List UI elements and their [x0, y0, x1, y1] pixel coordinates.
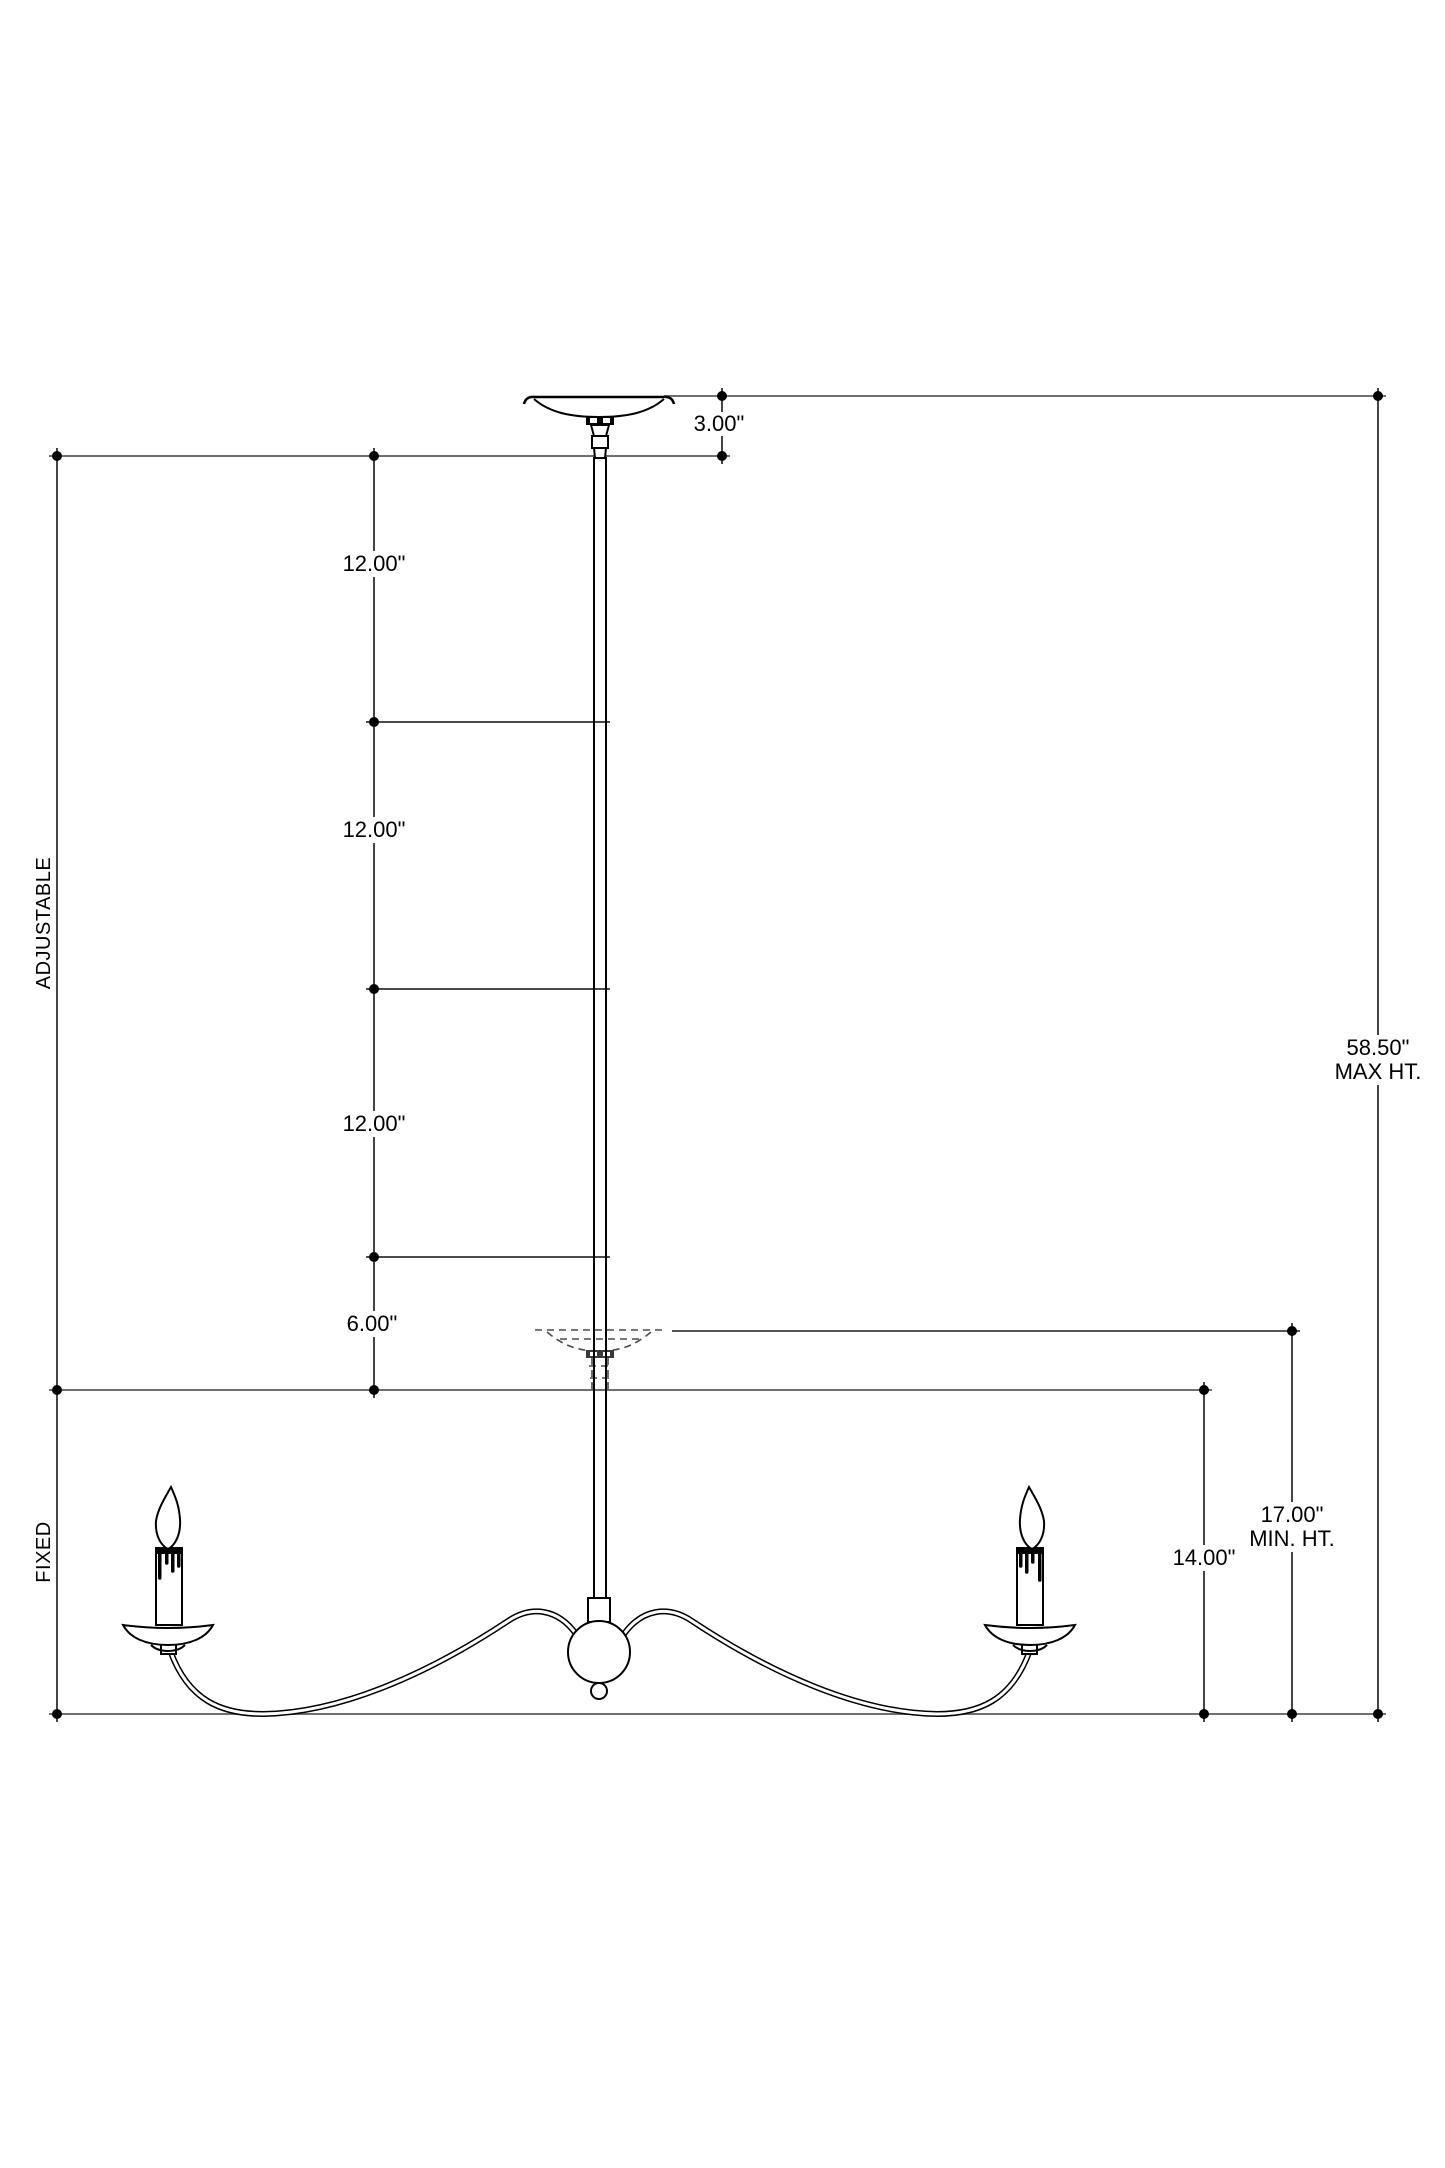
dim-label-max-height-unit: MAX HT.	[1335, 1060, 1422, 1084]
dot	[52, 451, 62, 461]
right-arm-inner	[624, 1611, 1030, 1714]
right-flame	[1020, 1487, 1044, 1549]
dim-label-fixed-height: 14.00"	[1168, 1545, 1241, 1571]
dot	[369, 1252, 379, 1262]
dimension-lines	[57, 388, 1378, 1722]
center-finial-ball	[591, 1683, 607, 1699]
dot	[1287, 1709, 1297, 1719]
canopy-coupler	[592, 436, 608, 448]
dot	[717, 451, 727, 461]
left-bobeche	[123, 1625, 213, 1645]
left-candle-assembly	[123, 1487, 213, 1654]
dimension-dots	[52, 391, 1383, 1719]
dot	[52, 1709, 62, 1719]
dot	[717, 391, 727, 401]
dim-label-rod-segment-2: 12.00"	[338, 817, 411, 843]
canopy-collar-slot-left	[590, 418, 597, 423]
dim-label-min-height: 17.00" MIN. HT.	[1244, 1502, 1340, 1552]
ceiling-canopy	[524, 397, 674, 458]
dot	[1287, 1326, 1297, 1336]
center-ball	[568, 1621, 630, 1683]
dim-label-max-height: 58.50" MAX HT.	[1330, 1035, 1427, 1085]
dim-label-canopy-drop: 3.00"	[691, 412, 748, 436]
reference-lines	[49, 396, 1386, 1714]
phantom-canopy	[535, 1330, 663, 1390]
section-label-adjustable: ADJUSTABLE	[32, 857, 56, 989]
dim-label-min-height-value: 17.00"	[1249, 1503, 1335, 1527]
dot	[369, 984, 379, 994]
dot	[1199, 1709, 1209, 1719]
center-collar-square	[588, 1598, 610, 1622]
canopy-neck	[591, 425, 609, 436]
canopy-coupler-lower	[594, 448, 606, 458]
dot	[369, 451, 379, 461]
dot	[1373, 391, 1383, 401]
dim-label-rod-segment-4: 6.00"	[342, 1311, 403, 1337]
right-bobeche	[985, 1625, 1075, 1645]
canopy-bowl	[534, 399, 664, 417]
dot	[1199, 1385, 1209, 1395]
dim-label-max-height-value: 58.50"	[1335, 1036, 1422, 1060]
hanging-rod	[594, 457, 606, 1600]
dim-label-min-height-unit: MIN. HT.	[1249, 1527, 1335, 1551]
canopy-collar-slot-right	[603, 418, 610, 423]
dot	[52, 1385, 62, 1395]
technical-drawing-canvas: 3.00" 12.00" 12.00" 12.00" 6.00" 58.50" …	[0, 0, 1445, 2168]
dot	[369, 1385, 379, 1395]
chandelier-dimension-drawing	[0, 0, 1445, 2168]
left-arm-inner	[170, 1611, 576, 1714]
left-arm-outline	[170, 1611, 576, 1714]
section-label-fixed: FIXED	[32, 1521, 56, 1582]
right-arm-outline	[624, 1611, 1030, 1714]
dot	[369, 717, 379, 727]
right-candle-assembly	[985, 1487, 1075, 1654]
phantom-canopy-bowl-left	[547, 1332, 599, 1351]
left-flame	[156, 1487, 180, 1549]
dim-label-rod-segment-1: 12.00"	[338, 551, 411, 577]
dot	[1373, 1709, 1383, 1719]
dim-label-rod-segment-3: 12.00"	[338, 1111, 411, 1137]
